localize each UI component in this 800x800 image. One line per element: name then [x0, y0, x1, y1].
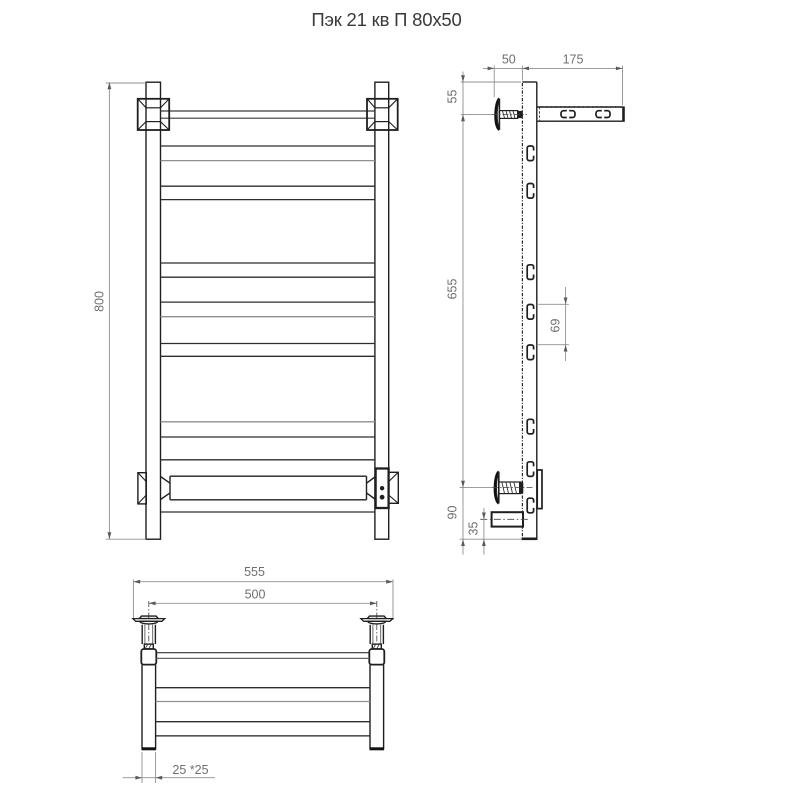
svg-text:35: 35: [467, 522, 481, 536]
svg-text:69: 69: [549, 319, 563, 333]
svg-text:55: 55: [445, 90, 459, 104]
svg-text:50: 50: [502, 53, 516, 67]
svg-text:90: 90: [446, 506, 460, 520]
svg-text:175: 175: [563, 53, 584, 67]
svg-text:800: 800: [93, 291, 107, 312]
svg-text:Пэк 21 кв П 80х50: Пэк 21 кв П 80х50: [311, 9, 461, 30]
svg-text:655: 655: [445, 279, 459, 300]
svg-text:500: 500: [245, 588, 266, 602]
svg-text:25 *25: 25 *25: [172, 763, 208, 777]
svg-text:555: 555: [244, 565, 265, 579]
